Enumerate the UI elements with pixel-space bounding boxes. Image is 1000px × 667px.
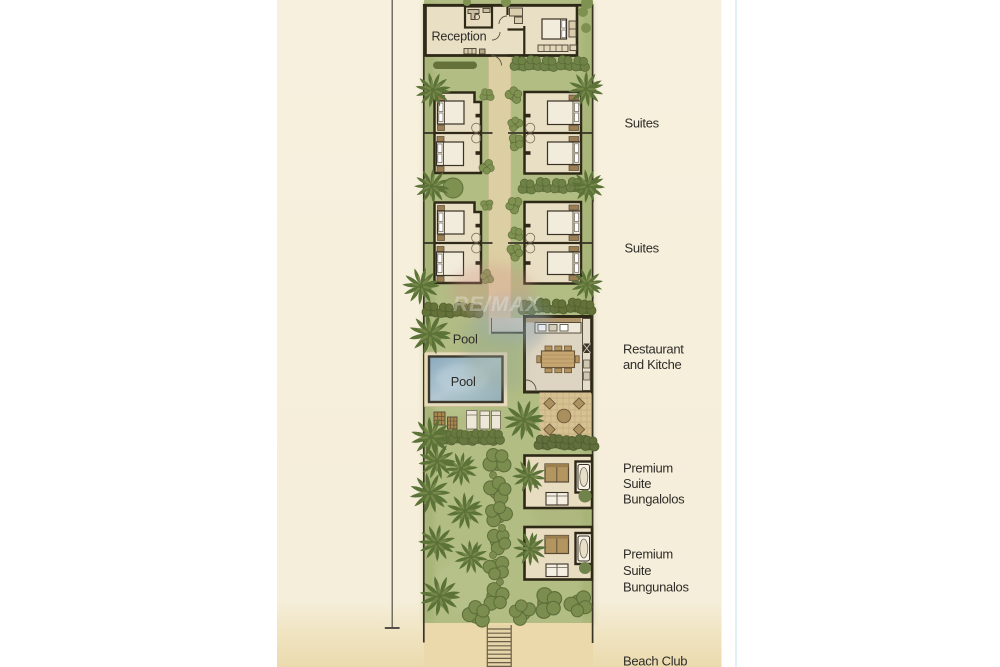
svg-text:Pool: Pool <box>453 332 478 347</box>
svg-text:Suite: Suite <box>623 563 651 578</box>
svg-text:Bungalolos: Bungalolos <box>623 492 685 507</box>
svg-text:Restaurant: Restaurant <box>623 342 684 357</box>
svg-text:Bungunalos: Bungunalos <box>623 580 689 595</box>
svg-text:Suites: Suites <box>625 241 660 256</box>
svg-text:RE/MAX: RE/MAX <box>453 293 542 316</box>
svg-text:Premium: Premium <box>623 547 673 562</box>
svg-text:Beach Club: Beach Club <box>623 654 687 667</box>
svg-text:Pool: Pool <box>451 374 476 389</box>
svg-text:Suites: Suites <box>625 116 660 131</box>
svg-text:Reception: Reception <box>432 30 487 44</box>
svg-text:and Kitche: and Kitche <box>623 357 682 372</box>
svg-text:Suite: Suite <box>623 476 651 491</box>
svg-text:Premium: Premium <box>623 461 673 476</box>
